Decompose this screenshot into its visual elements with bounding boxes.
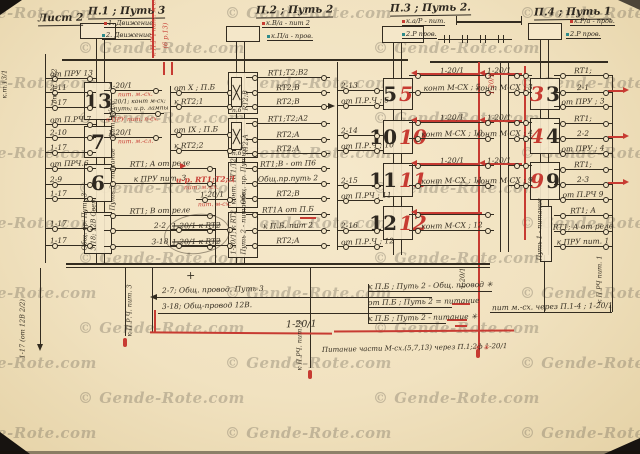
- red-arrow-icon: [479, 160, 485, 166]
- plus-mark: +: [186, 270, 195, 281]
- row-label: от ПРУ ; 4: [561, 144, 604, 153]
- sub-label: к.В/а - пит 2: [266, 19, 310, 27]
- contact-row: RT1; A от реле: [554, 231, 612, 232]
- sub-label: 2.Р пров.: [406, 30, 437, 38]
- rail-vertical-label: Путь 3 - питание: [110, 148, 117, 210]
- watermark-text: © Gende-Rote.com: [373, 389, 540, 407]
- contact-row: от IX ; П.Б: [170, 134, 236, 135]
- bottom-bus-line: [66, 267, 490, 268]
- block-vertical-label: Путь 2 - питание: [241, 192, 248, 254]
- row-label: от П.Р.Ч ; 5: [341, 96, 389, 105]
- red-note: и-р. RT1;Т2;Д: [176, 175, 235, 184]
- contact-row: Общ.пр.путь 2: [246, 183, 330, 184]
- wire-line: [244, 42, 245, 59]
- contact-symbol: [498, 35, 499, 43]
- contact-symbol: [444, 35, 445, 43]
- note: 3 путь; и.р. лампы: [108, 105, 169, 112]
- contact-row: RT1;: [554, 75, 612, 76]
- section-title-p2: П.2 ; Путь 2: [256, 4, 333, 18]
- bottom-label: 2-7; Общ. провод. Путь 3: [162, 285, 264, 295]
- contact-row: RT2;B: [246, 198, 330, 199]
- contact-row: RT2;B: [246, 106, 330, 107]
- contact-row: [508, 185, 532, 186]
- contact-row: от П.РЧ 9: [554, 199, 612, 200]
- red-arrow-icon: [411, 160, 417, 166]
- contact-row: 2-14: [337, 135, 383, 136]
- row-label: 1-17: [50, 189, 67, 197]
- row-label: от П.Р.Ч ; 10: [341, 141, 394, 150]
- row-label: RT1;: [574, 160, 592, 168]
- contact-row: 1-17: [46, 245, 96, 246]
- bottom-label: к П.Б ; Путь 2 - питание ✳: [368, 313, 477, 323]
- row-label: 2-9: [50, 175, 62, 183]
- block-number: 7: [91, 132, 105, 152]
- edge-note: 1-17 (от 12В 2/2): [20, 299, 27, 358]
- contact-row: RT1;T2;A2: [246, 123, 330, 124]
- drop-line: [40, 268, 41, 346]
- feed-strip-label: Путь 1 - питание: [537, 198, 544, 260]
- row-label: RT1;B - от П6: [260, 159, 316, 168]
- vertical-label: к П.РЧ пит. 1: [597, 256, 604, 304]
- dimension-tick: [456, 16, 457, 25]
- contact-symbol: [467, 35, 468, 43]
- row-label: от П.Р.Ч ; 12: [341, 237, 394, 246]
- contact-row: RT2;А: [246, 245, 330, 246]
- red-mark: [262, 22, 265, 25]
- scan-corner: [618, 0, 640, 10]
- arrow-icon: [328, 103, 335, 109]
- block-vertical-label: RT2;B: [243, 90, 250, 110]
- wire-line: [236, 42, 237, 59]
- sub-label: к.Р/а - пров.: [574, 17, 615, 25]
- contact-symbol: [503, 35, 504, 43]
- transformer-box-p4: [528, 23, 562, 40]
- red-arrow-icon: [479, 117, 485, 123]
- block-vertical-label: Общ. пр. Путь 3: [82, 193, 89, 251]
- row-label: RT2;A: [276, 144, 299, 152]
- contact-row: 2-16: [337, 230, 383, 231]
- contact-row: от ПРЧ.6: [46, 168, 96, 169]
- row-label: 2-3: [577, 175, 589, 183]
- red-mark: [402, 20, 405, 23]
- wire-line: [104, 39, 105, 59]
- contact-row: 2-9: [46, 184, 96, 185]
- watermark-text: © Gende-Rote.com: [520, 354, 640, 372]
- row-label: RT1А от П.Б: [262, 205, 314, 214]
- contact-row: к RT2;1: [170, 106, 236, 107]
- block-number: 9: [546, 171, 560, 191]
- contact-row: 1-17: [46, 228, 96, 229]
- row-label: от П.РЧ ; 11: [341, 191, 392, 200]
- red-blob: [123, 338, 127, 347]
- contact-row: 2-15: [337, 185, 383, 186]
- edge-note: к.т.13/1: [2, 70, 9, 99]
- row-label: от П.РЧ 9: [562, 190, 603, 199]
- wire-line: [401, 43, 402, 59]
- red-line: [154, 310, 156, 332]
- contact-row: 1-17: [46, 107, 96, 108]
- contact-row: от П.РЧ ; 11: [337, 200, 383, 201]
- contact-row: от П.Р.Ч ; 12: [337, 246, 383, 247]
- section-sub-p2-2: к.П/а - пров.: [267, 33, 313, 41]
- wire-line: [96, 39, 97, 59]
- section-sub-p1-2: 2. Движение: [102, 32, 151, 40]
- red-underline: [300, 217, 316, 219]
- section-sub-p2-1: к.В/а - пит 2: [262, 20, 310, 28]
- contact-row: RT1;: [554, 169, 612, 170]
- row-label: конт М-СХ ; 11: [421, 176, 483, 185]
- row-label: 1-17: [50, 236, 67, 244]
- row-label: 2-16: [341, 221, 358, 229]
- section-sub-p4-2: 2.Р пров.: [566, 31, 601, 39]
- block-tag: п.б: [232, 108, 242, 114]
- contact-row: RT2;A: [246, 153, 330, 154]
- row-label: RT2;B: [276, 189, 300, 197]
- row-label: к ПРУ пит. 1: [557, 237, 610, 246]
- row-label: от ПРУ ; 3: [561, 97, 604, 106]
- row-label: RT1;: [574, 114, 592, 122]
- block-vertical-label: 1-20/1; к RT2: [231, 210, 238, 254]
- contact-row: 1-17: [46, 198, 96, 199]
- row-label: RT2;A: [276, 130, 299, 138]
- row-label: 2-1: [577, 83, 589, 91]
- row-label: конт М-СХ ; 10: [421, 129, 483, 138]
- collector-line: [612, 75, 613, 312]
- section-sub-p1-1: 1. Движение: [104, 20, 153, 28]
- watermark-text: © Gende-Rote.com: [78, 319, 245, 337]
- red-note: пит. м.-сл.: [118, 139, 153, 146]
- row-label: RT1;T2;A2: [268, 114, 308, 123]
- row-label: конт М-СХ ; 5: [423, 83, 480, 92]
- contact-row: от П.Р.Ч ; 10: [337, 150, 383, 151]
- block-number: 3: [546, 84, 560, 104]
- crossed-contact-symbol: [231, 77, 242, 107]
- contact-row: к ПРУ пит. 1: [554, 246, 612, 247]
- contact-row: RT1; A от реле: [104, 168, 216, 169]
- vertical-label: к П.Р.Ч. пит. 3: [127, 284, 134, 336]
- contact-row: 2-13: [337, 90, 383, 91]
- bottom-line: [368, 307, 452, 308]
- red-dash: [455, 325, 467, 327]
- row-label: 1-20/1: [439, 113, 463, 121]
- collector-line: [45, 54, 46, 263]
- contact-symbol: [480, 35, 481, 43]
- edge-note: от т.13/2: [52, 69, 59, 104]
- row-label: конт М-СХ ; 12: [421, 221, 483, 230]
- contact-row: [409, 214, 494, 215]
- row-label: 1-20/1: [108, 81, 132, 89]
- bottom-bus-line: [66, 263, 490, 265]
- relay-block-12: 1212: [383, 206, 413, 240]
- red-arrow-icon: [411, 209, 417, 215]
- red-arrow-icon: [623, 133, 629, 139]
- row-label: 1-20/1: [200, 190, 224, 198]
- row-label: 2-13: [341, 81, 358, 89]
- rail-vertical-label: Пит. М-сх.: [110, 100, 117, 138]
- red-stars: ✳ ✳: [474, 344, 489, 352]
- row-label: от П.РЧ 7: [50, 115, 91, 124]
- contact-row: от X ; П.Б: [170, 92, 236, 93]
- red-vertical-note: к П.РЧ пит. м-сх.: [151, 0, 158, 57]
- row-label: Общ.пр.путь 2: [258, 174, 318, 183]
- row-label: RT2;B: [276, 97, 300, 105]
- red-mark: [570, 20, 573, 23]
- red-blob: [308, 370, 312, 379]
- red-arrow-icon: [479, 70, 485, 76]
- contact-row: 2-1: [554, 92, 612, 93]
- red-arrow-icon: [411, 117, 417, 123]
- block-number: 4: [546, 126, 560, 146]
- sub-label: 2. Движение: [106, 31, 151, 39]
- block-number-red: 5: [399, 84, 413, 104]
- bottom-line: [490, 312, 612, 313]
- row-label: 2-15: [341, 176, 358, 184]
- row-label: 2-14: [341, 126, 358, 134]
- contact-row: [508, 165, 532, 166]
- bottom-label: 3-18; Общ-провод 12В.: [162, 301, 252, 310]
- sub-label: к.а/Р - пит.: [406, 17, 445, 25]
- row-label: RT1; A: [570, 206, 596, 214]
- contact-row: к RT2;2: [170, 150, 236, 151]
- row-label: RT2;B: [276, 83, 300, 91]
- row-label: от IX ; П.Б: [174, 125, 218, 134]
- contact-row: конт М-СХ ; 12: [409, 230, 494, 231]
- contact-row: 2-3: [554, 184, 612, 185]
- red-vertical-note: 1-20/1: [489, 74, 496, 95]
- row-label: 2-2: [154, 221, 166, 229]
- section-sub-p3-1: к.а/Р - пит.: [402, 18, 445, 26]
- watermark-text: © Gende-Rote.com: [0, 284, 97, 302]
- contact-row: RT1;B - от П6: [246, 168, 330, 169]
- contact-row: RT1; A: [554, 215, 612, 216]
- row-label: 1-20/1: [487, 114, 511, 122]
- vertical-label: 1-20/1: [460, 268, 467, 289]
- row-label: конт М-СХ ; 3: [476, 83, 533, 92]
- block-vertical-label: 3-18; 12В Свет: [91, 198, 98, 251]
- red-note: пит. м.-сх.: [184, 185, 219, 192]
- contact-row: от ПРУ ; 4: [554, 153, 612, 154]
- watermark-text: © Gende-Rote.com: [225, 424, 392, 442]
- bus-line-left: [62, 59, 408, 61]
- row-label: 1-17: [50, 143, 67, 151]
- contact-symbol: [449, 35, 450, 43]
- row-label: к П.Б. пит 2: [263, 221, 313, 230]
- bottom-line: [368, 323, 446, 324]
- contact-row: от П.РЧ 7: [46, 124, 96, 125]
- red-note: пит. м-сх.: [198, 202, 231, 209]
- row-label: RT2;А: [276, 236, 300, 244]
- row-label: 1-20/1: [439, 156, 463, 164]
- contact-row: от П.Р.Ч ; 5: [337, 105, 383, 106]
- red-arrow-icon: [411, 70, 417, 76]
- arrow-left-icon: [150, 294, 157, 300]
- teal-mark: [267, 35, 270, 38]
- teal-mark: [402, 33, 405, 36]
- contact-row: RT1;: [554, 123, 612, 124]
- row-label: 1-17: [50, 219, 67, 227]
- contact-row: 2-10: [46, 137, 96, 138]
- row-label: RT1;T2;B2: [268, 68, 309, 77]
- contact-row: RT1А от П.Б: [246, 214, 330, 215]
- dimension-tick: [521, 16, 522, 25]
- contact-row: [508, 138, 532, 139]
- sub-label: 1. Движение: [108, 19, 153, 27]
- sub-label: 2.Р пров.: [570, 30, 601, 38]
- row-label: 1-20/1: [439, 66, 463, 74]
- wire-line: [393, 43, 394, 59]
- vertical-label: к П.РЧ. пит. 2: [297, 320, 304, 370]
- row-label: к RT2;1: [174, 97, 204, 105]
- contact-row: от ПРУ ; 3: [554, 106, 612, 107]
- row-label: к RT2;2: [174, 141, 204, 149]
- watermark-text: © Gende-Rote.com: [78, 389, 245, 407]
- row-label: от X ; П.Б: [174, 83, 215, 92]
- section-title-p3: П.3 ; Путь 2.: [390, 2, 471, 16]
- contact-row: 1-17: [46, 152, 96, 153]
- dimension-line: [456, 21, 522, 23]
- section-sub-p4-1: к.Р/а - пров.: [570, 18, 615, 26]
- sub-label: к.П/а - пров.: [271, 32, 313, 40]
- contact-row: [508, 122, 532, 123]
- scan-corner: [0, 0, 22, 15]
- transformer-box-p2: [226, 26, 260, 42]
- contact-row: [508, 75, 532, 76]
- contact-row: [508, 92, 532, 93]
- relay-block-9: 99: [530, 162, 560, 200]
- red-tick: [163, 62, 165, 75]
- arrow-down-icon: [37, 344, 43, 351]
- contact-row: RT1;T2;B2: [246, 77, 330, 78]
- teal-mark: [102, 34, 105, 37]
- block-number: 6: [91, 173, 105, 193]
- sheet-label: Лист 2: [38, 13, 84, 26]
- row-label: конт М-СХ ; 4: [476, 129, 533, 138]
- red-line: [478, 62, 480, 352]
- red-mark: [104, 22, 107, 25]
- section-sub-p3-2: 2.Р пров.: [402, 31, 437, 39]
- watermark-text: © Gende-Rote.com: [520, 284, 640, 302]
- contact-symbol: [485, 35, 486, 43]
- bus-line-right: [430, 61, 608, 63]
- contact-row: 2-2: [554, 138, 612, 139]
- watermark-text: © Gende-Rote.com: [0, 354, 97, 372]
- red-arrow-icon: [623, 179, 629, 185]
- red-arrow-icon: [623, 87, 629, 93]
- red-vertical-note: (6 р.13): [163, 23, 170, 49]
- row-label: RT1; A от реле: [553, 222, 614, 231]
- row-label: от ПРЧ.6: [50, 159, 89, 168]
- row-label: конт М-СХ ; 9: [476, 176, 533, 185]
- contact-row: к П.Б. пит 2: [246, 230, 330, 231]
- row-label: 2-2: [577, 129, 589, 137]
- drop-line: [152, 268, 153, 332]
- red-tick: [171, 62, 173, 75]
- contact-row: RT2;B: [246, 92, 330, 93]
- row-label: 1-20/1: [487, 157, 511, 165]
- relay-block-5: 55: [383, 78, 413, 110]
- contact-symbol: [462, 35, 463, 43]
- teal-mark: [566, 33, 569, 36]
- wire-line: [548, 40, 549, 59]
- red-arrow-icon: [180, 163, 186, 169]
- row-label: RT1; B от реле: [130, 206, 191, 215]
- bottom-line: [368, 291, 492, 292]
- row-label: 2-10: [50, 128, 67, 136]
- contact-row: RT2;A: [246, 139, 330, 140]
- wire-line: [540, 40, 541, 59]
- row-label: RT1;: [574, 66, 592, 74]
